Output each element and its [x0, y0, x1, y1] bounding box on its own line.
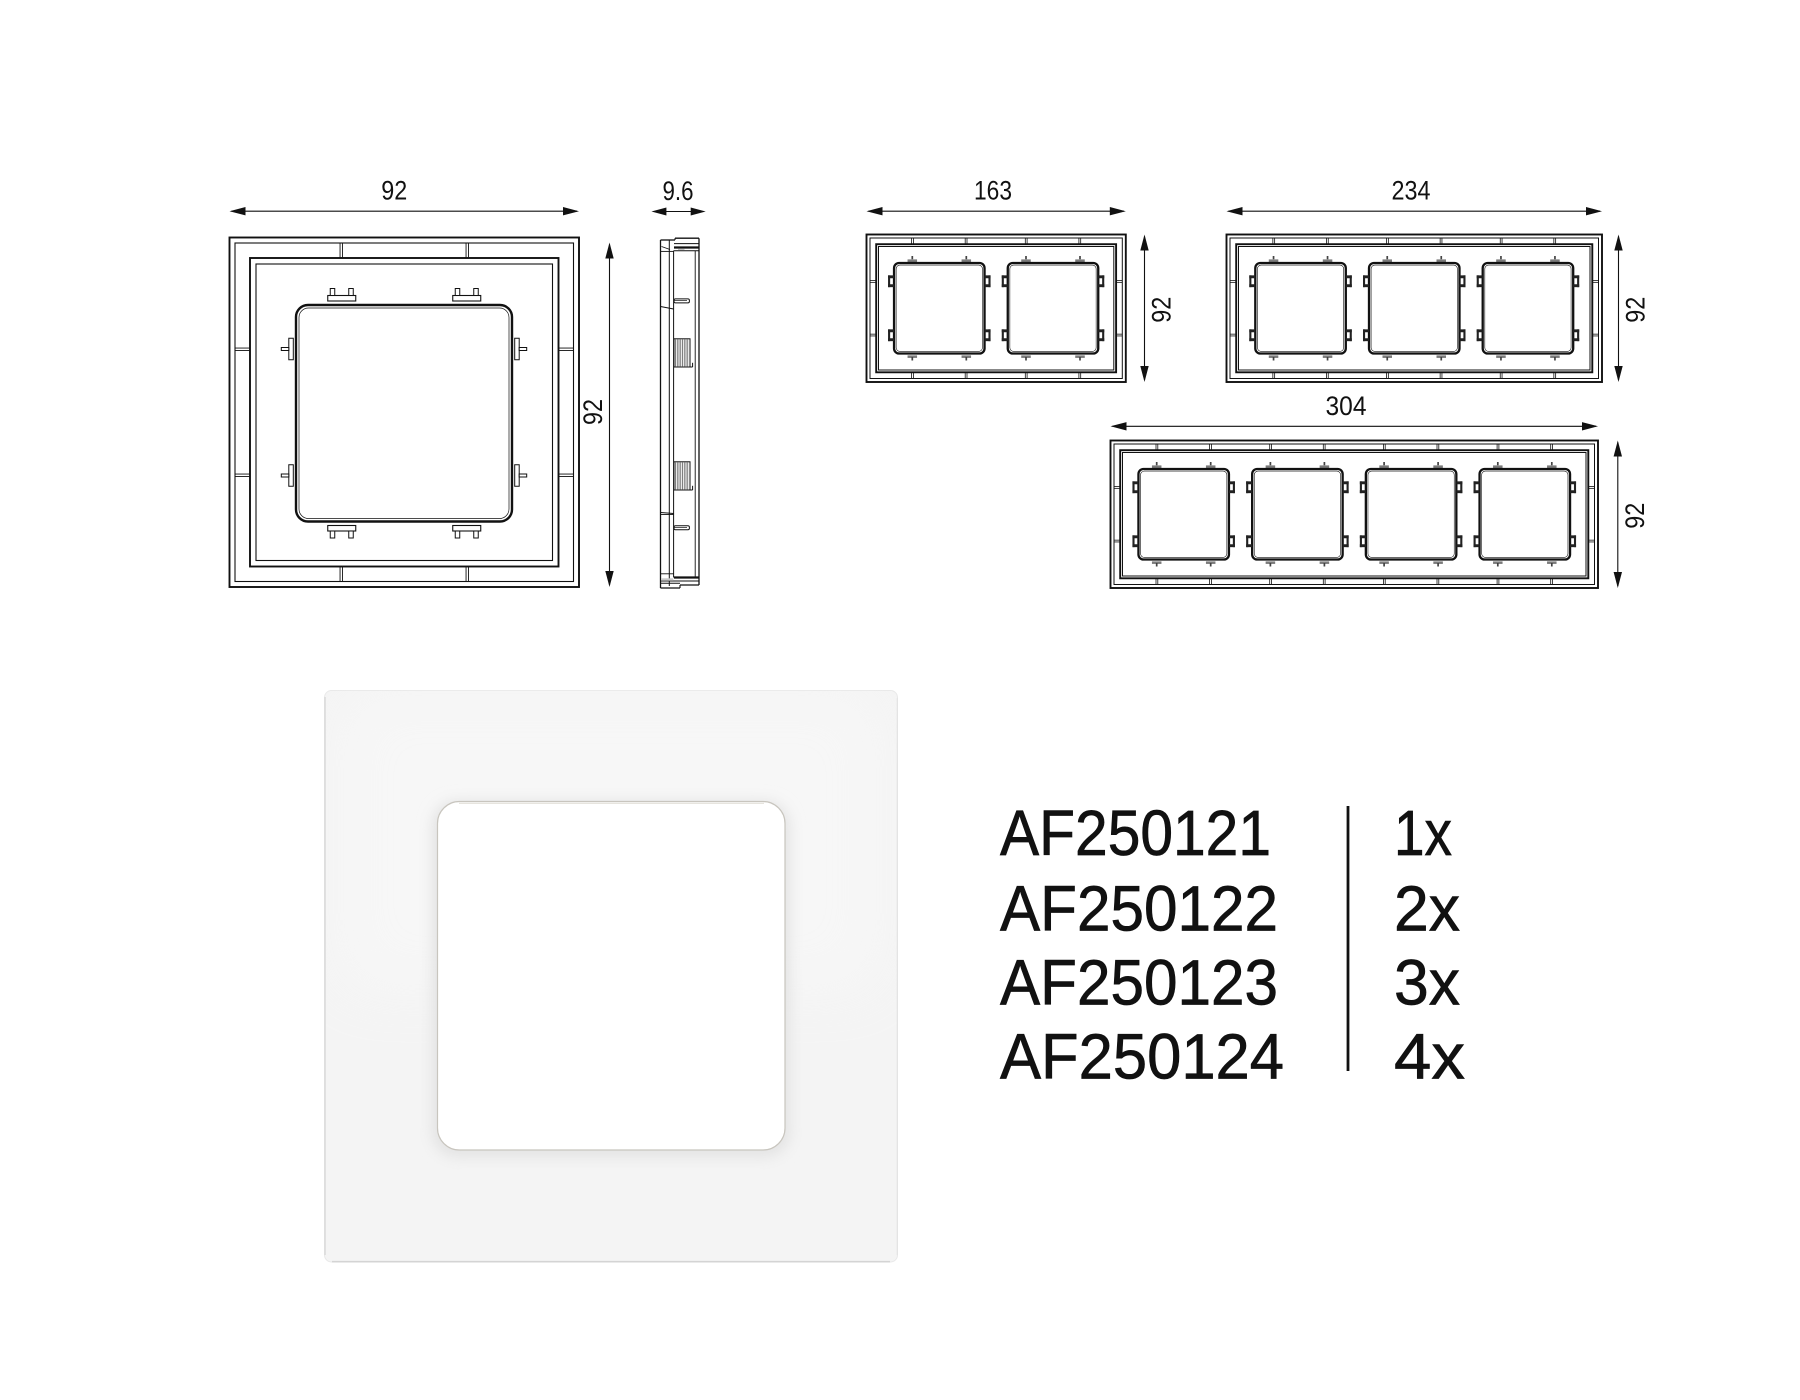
svg-text:92: 92 [1621, 297, 1651, 323]
svg-text:AF250124: AF250124 [1000, 1021, 1284, 1093]
svg-text:92: 92 [1620, 503, 1650, 529]
svg-text:9.6: 9.6 [663, 176, 694, 206]
svg-text:1x: 1x [1394, 797, 1452, 869]
svg-text:234: 234 [1392, 176, 1431, 206]
svg-text:92: 92 [578, 399, 608, 425]
svg-text:4x: 4x [1394, 1021, 1465, 1093]
svg-text:92: 92 [1147, 297, 1177, 323]
svg-text:163: 163 [974, 176, 1012, 206]
svg-text:AF250121: AF250121 [1000, 797, 1271, 869]
svg-text:2x: 2x [1394, 873, 1460, 945]
svg-text:AF250122: AF250122 [1000, 873, 1278, 945]
svg-text:92: 92 [381, 176, 407, 206]
svg-text:AF250123: AF250123 [1000, 947, 1278, 1019]
svg-text:3x: 3x [1394, 947, 1460, 1019]
svg-text:304: 304 [1326, 391, 1367, 421]
